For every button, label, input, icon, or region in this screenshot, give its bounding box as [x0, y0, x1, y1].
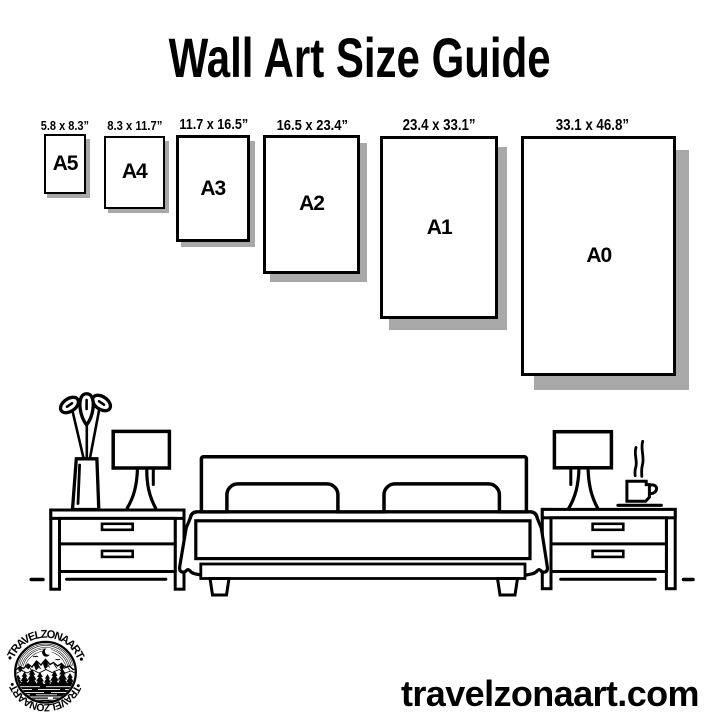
svg-text:•TRAVELZONAART•: •TRAVELZONAART•	[4, 629, 87, 664]
